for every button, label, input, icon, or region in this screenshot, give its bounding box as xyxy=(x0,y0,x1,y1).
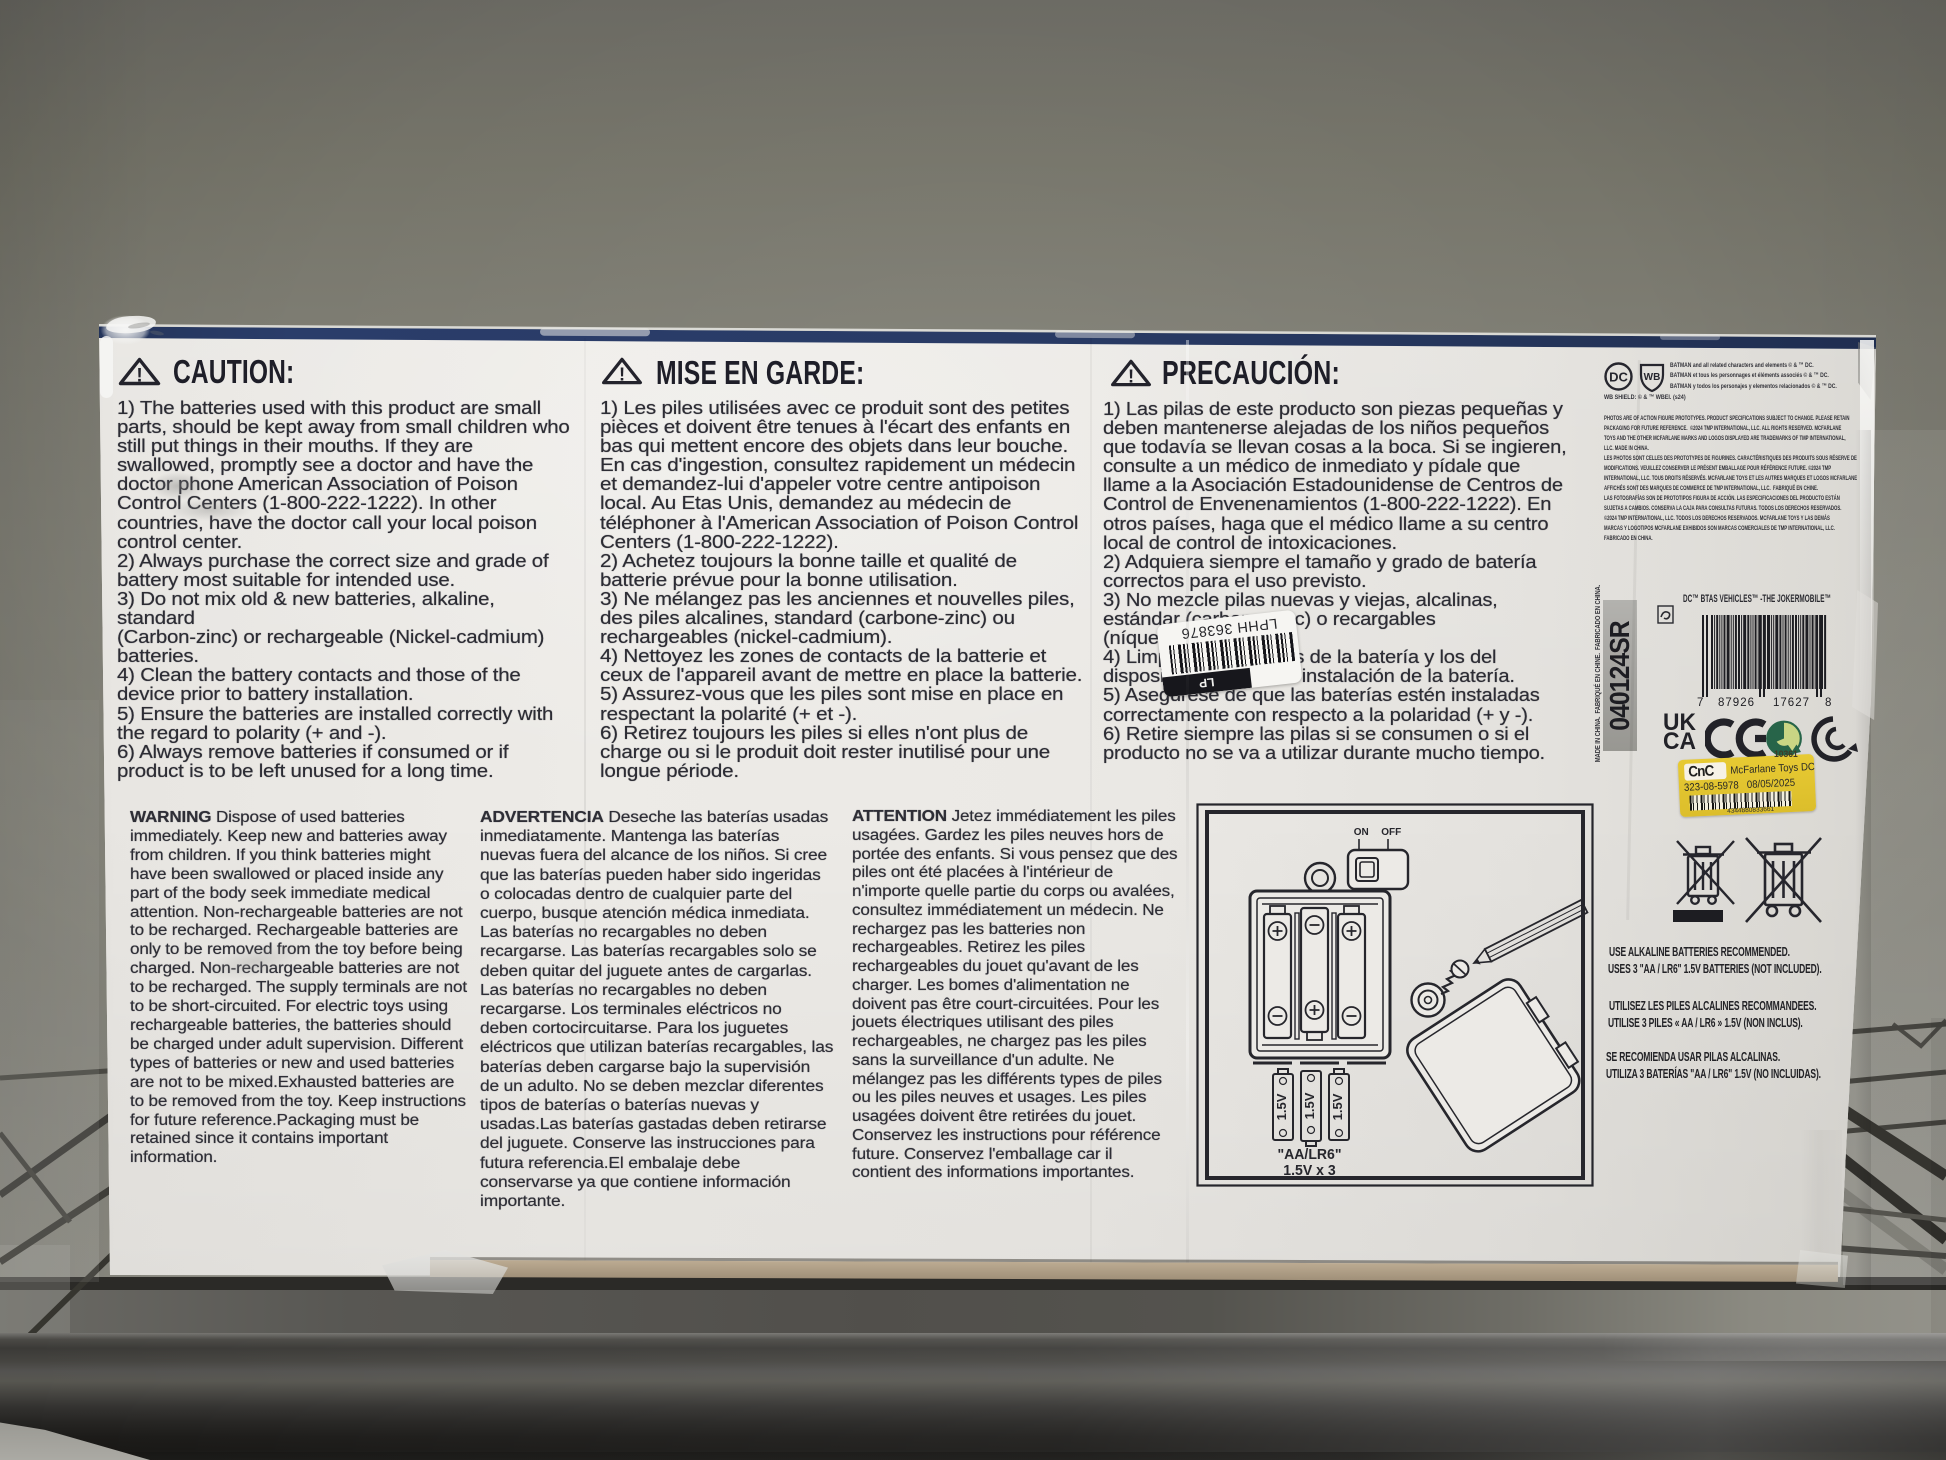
svg-text:WB: WB xyxy=(1644,372,1661,383)
svg-text:1.5V: 1.5V xyxy=(1330,1093,1345,1120)
svg-text:1.5V: 1.5V xyxy=(1302,1092,1317,1119)
svg-text:!: ! xyxy=(1128,366,1134,387)
svg-text:87926: 87926 xyxy=(1718,697,1754,709)
svg-text:1.5V: 1.5V xyxy=(1274,1093,1289,1120)
svg-text:OFF: OFF xyxy=(1381,827,1401,838)
svg-text:!: ! xyxy=(619,364,625,385)
svg-text:8: 8 xyxy=(1825,697,1831,709)
svg-text:ON: ON xyxy=(1354,827,1369,838)
svg-text:7: 7 xyxy=(1697,697,1703,709)
svg-text:DC: DC xyxy=(1609,370,1628,385)
svg-text:17627: 17627 xyxy=(1773,697,1809,709)
svg-text:"AA/LR6": "AA/LR6" xyxy=(1277,1147,1341,1163)
svg-text:!: ! xyxy=(136,366,142,387)
svg-text:1.5V x 3: 1.5V x 3 xyxy=(1283,1163,1335,1179)
